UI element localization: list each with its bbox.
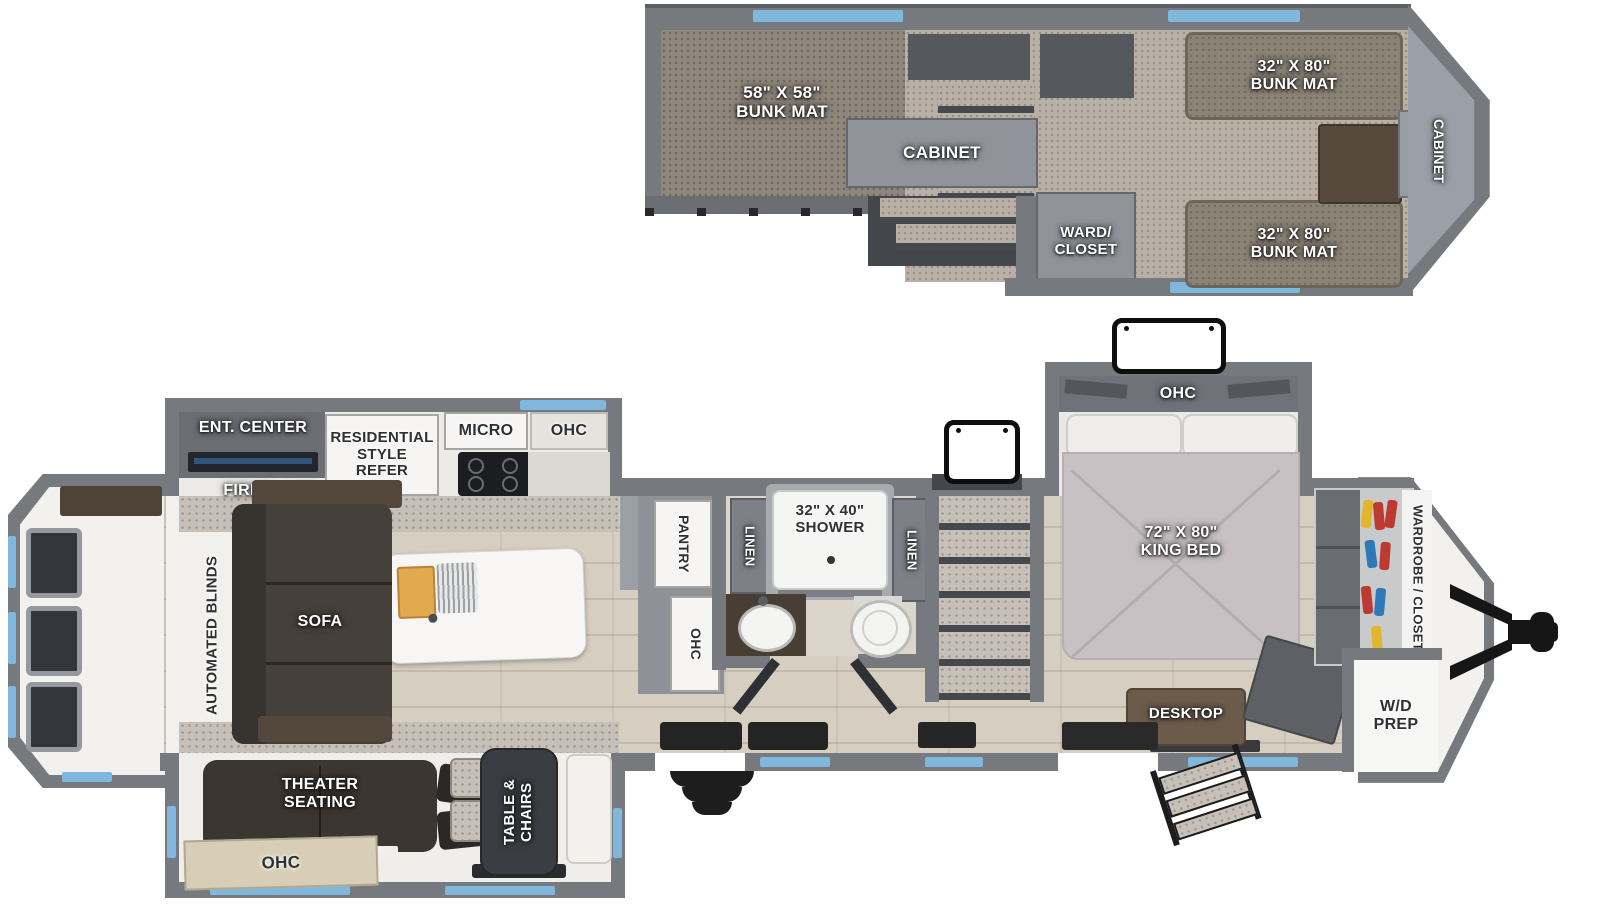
tv-icon <box>944 420 1020 484</box>
entry-door-opening <box>655 753 745 771</box>
hanging-clothes <box>1379 542 1391 571</box>
linen-left: LINEN <box>730 498 768 594</box>
theater-ohc: OHC <box>183 835 378 890</box>
wardrobe-closet-label: WARDROBE / CLOSET <box>1402 490 1432 666</box>
toilet-seat <box>862 610 898 646</box>
bunk-mat-bottom: 32" X 80" BUNK MAT <box>1185 200 1403 288</box>
king-slide-left-wall <box>1045 362 1059 496</box>
tv-mount-dot <box>1003 428 1008 433</box>
pantry: PANTRY <box>654 500 712 588</box>
burner <box>468 476 484 492</box>
loft-stair-tread-wide <box>880 198 1030 224</box>
bath-sink-cabinet <box>726 594 806 656</box>
wd-prep-left-wall <box>1342 648 1354 772</box>
bath-left-wall <box>712 496 726 670</box>
stair-left-wall <box>925 496 939 702</box>
rear-window-blinds <box>26 682 82 752</box>
cutting-board <box>397 566 437 619</box>
sofa-cushion-gap <box>266 662 392 665</box>
loft-nightstand <box>1318 124 1402 204</box>
slide-window <box>445 886 555 895</box>
rear-bottom-window <box>62 772 112 782</box>
bath-bottom-wall-right <box>858 654 930 668</box>
rear-window-blinds <box>26 528 82 598</box>
closet-dresser <box>1316 490 1360 664</box>
island-faucet <box>428 614 437 623</box>
rv-floorplan: 58" X 58" BUNK MAT CABINET WARD/ CLOSET … <box>0 0 1600 904</box>
rear-overhead-cabinet <box>60 486 162 516</box>
kitchen-slide-right-wall <box>608 398 622 496</box>
stair-tread <box>939 496 1030 530</box>
stair-tread <box>939 530 1030 564</box>
kitchen-ohc: OHC <box>530 412 608 450</box>
bedroom-door-mat <box>1062 722 1158 750</box>
ent-center-label: ENT. CENTER <box>185 416 321 440</box>
ward-closet: WARD/ CLOSET <box>1036 192 1136 292</box>
entry-step <box>670 771 754 787</box>
stair-mat <box>918 722 976 748</box>
slide-window <box>613 808 622 858</box>
island-sink <box>436 562 478 613</box>
bottom-window <box>760 757 830 767</box>
loft-cabinet: CABINET <box>846 118 1038 188</box>
burner <box>502 476 518 492</box>
kitchen-island <box>381 548 587 665</box>
king-slide-right-wall <box>1298 362 1312 496</box>
automated-blinds-label: AUTOMATED BLINDS <box>196 520 230 750</box>
sofa-console-bottom <box>258 716 392 742</box>
microwave: MICRO <box>444 412 528 450</box>
loft-stair-opening-2 <box>1040 34 1134 98</box>
stair-tread <box>939 598 1030 632</box>
sofa-cushion-gap <box>266 582 392 585</box>
wd-prep-room: W/D PREP <box>1354 660 1438 772</box>
dresser-shelf-line <box>1316 606 1360 609</box>
loft-window-top-left <box>753 10 903 22</box>
rear-window-strip <box>8 686 16 738</box>
stair-tread <box>939 666 1030 700</box>
tv-mount-dot <box>956 428 961 433</box>
bedroom-ohc-label: OHC <box>1148 382 1208 406</box>
kitchen-counter <box>528 452 610 496</box>
tv-mount-dot <box>1209 326 1214 331</box>
rear-window-blinds <box>26 606 82 676</box>
shower-drain <box>827 556 835 564</box>
toilet <box>850 600 912 658</box>
stair-tread <box>939 632 1030 666</box>
ent-center-tv-screen <box>194 458 312 464</box>
bath-faucet <box>758 596 768 606</box>
loft-stair-tread <box>938 84 1034 113</box>
sofa-label: SOFA <box>270 610 370 634</box>
stair-right-wall <box>1030 496 1044 702</box>
shower-label: 32" X 40" SHOWER <box>772 498 888 542</box>
tv-icon <box>1112 318 1226 374</box>
slide-window <box>167 806 176 858</box>
loft-stair-tread-wide <box>896 224 1028 250</box>
loft-left-wall <box>645 8 661 214</box>
hitch-icon <box>1450 582 1558 682</box>
dinette-table: TABLE & CHAIRS <box>480 748 558 876</box>
burner <box>502 458 518 474</box>
entry-step <box>682 787 742 802</box>
dresser-shelf-line <box>1316 546 1360 549</box>
stair-tread <box>939 564 1030 598</box>
kitchen-slide-window <box>520 400 606 410</box>
tv-mount-dot <box>1124 326 1129 331</box>
bedroom-door-opening <box>1058 753 1158 771</box>
bath-sink <box>738 604 796 652</box>
burner <box>468 458 484 474</box>
wd-prep-top-wall <box>1342 648 1442 660</box>
entry-mat <box>660 722 742 750</box>
loft-stair-opening-1 <box>908 34 1030 80</box>
entry-step <box>692 802 732 815</box>
loft-window-top-right <box>1168 10 1300 22</box>
dinette-bench <box>566 754 612 864</box>
theater-seating-label: THEATER SEATING <box>230 772 410 816</box>
bath-bottom-wall-left <box>712 654 770 668</box>
entry-mat <box>748 722 828 750</box>
loft-front-cabinet-label: CABINET <box>1423 92 1453 210</box>
bunk-mat-top: 32" X 80" BUNK MAT <box>1185 32 1403 120</box>
king-bed-label: 72" X 80" KING BED <box>1120 520 1242 564</box>
sofa-back <box>232 504 266 744</box>
rear-window-strip <box>8 536 16 588</box>
bottom-window <box>925 757 983 767</box>
rear-window-strip <box>8 612 16 664</box>
kitchen-slide-left-wall <box>165 398 179 496</box>
